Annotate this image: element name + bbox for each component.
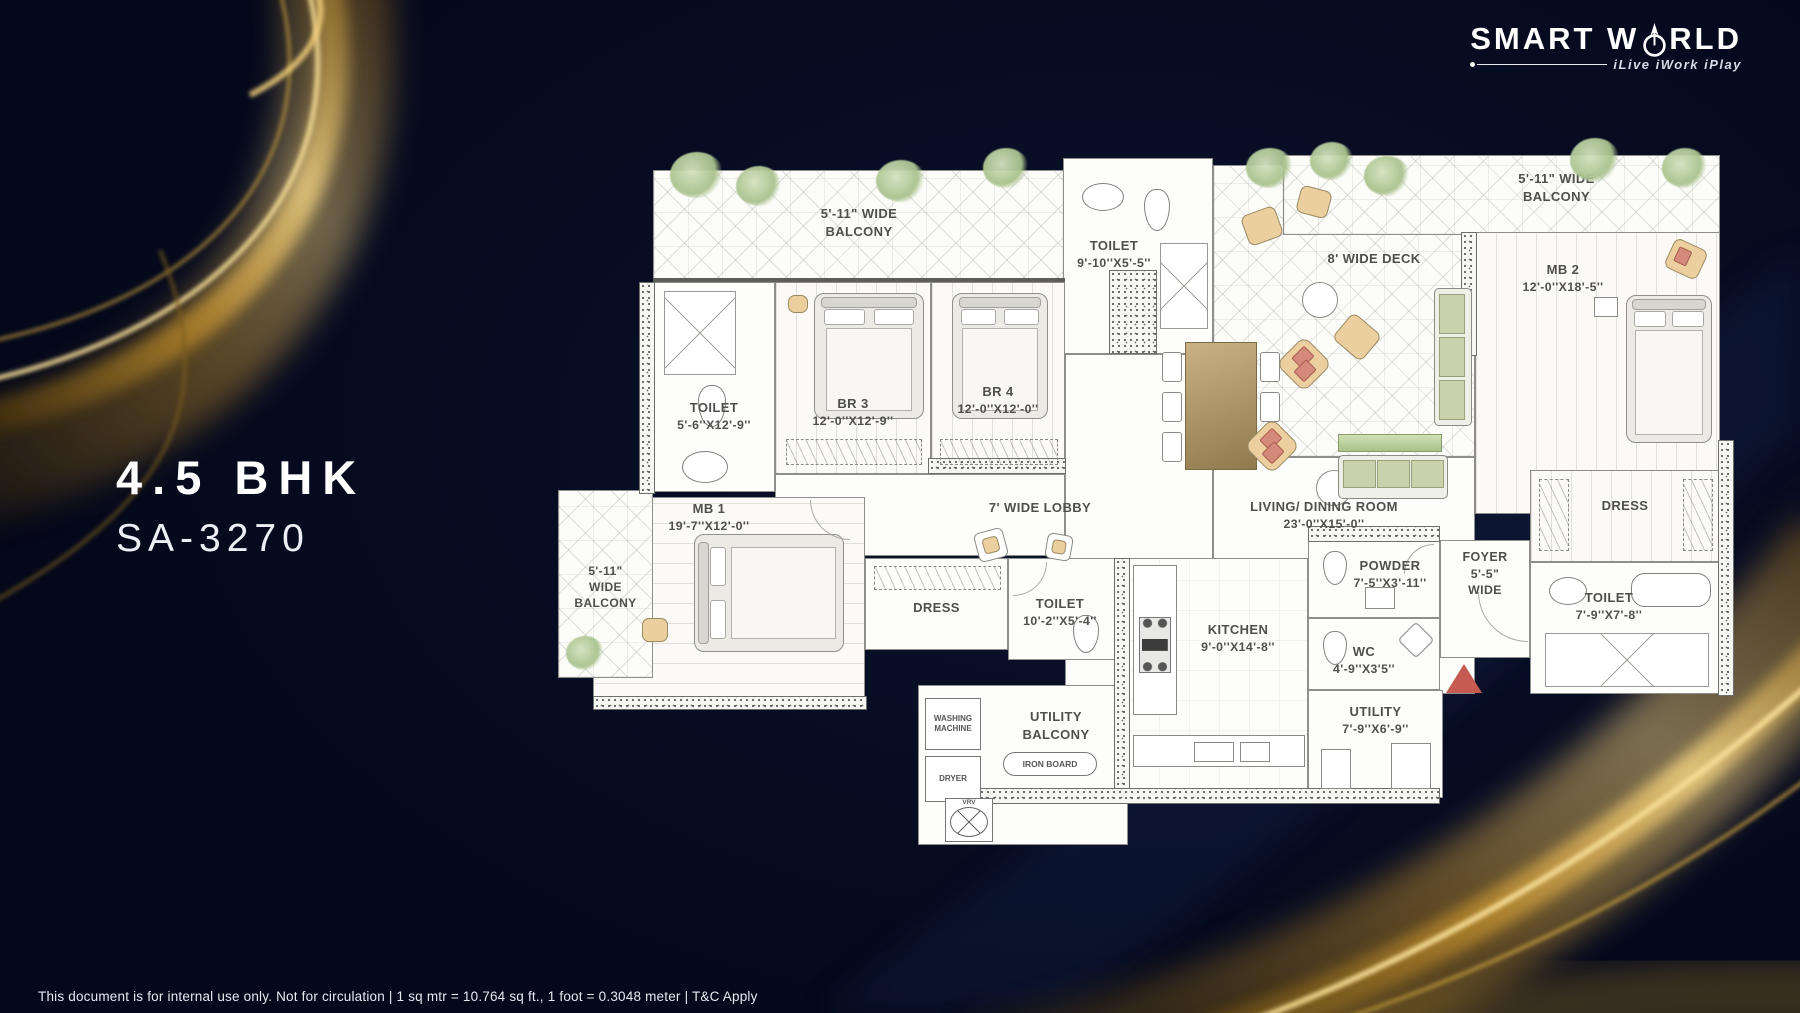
room-dims: 7'-9''X7'-8'' bbox=[1515, 607, 1703, 624]
room-dims: 4'-9''X3'5'' bbox=[1319, 661, 1409, 678]
dining-chair bbox=[1260, 352, 1280, 382]
room-name: BR 4 bbox=[932, 383, 1064, 401]
room-label: LIVING/ DINING ROOM 23'-0''X15'-0'' bbox=[1194, 498, 1454, 532]
kitchen-counter bbox=[1133, 735, 1305, 767]
room-dims: 23'-0''X15'-0'' bbox=[1194, 516, 1454, 533]
dryer: DRYER bbox=[925, 756, 981, 802]
deck-chair bbox=[1332, 312, 1383, 362]
tree bbox=[1246, 148, 1294, 188]
tree bbox=[670, 152, 724, 198]
feature-wall bbox=[1114, 558, 1130, 792]
dining-chair bbox=[1162, 392, 1182, 422]
room-label: MB 1 19'-7''X12'-0'' bbox=[624, 500, 794, 534]
room-name: FOYER bbox=[1441, 549, 1529, 566]
nightstand bbox=[1594, 297, 1618, 317]
room-name: 5'-11" bbox=[559, 563, 652, 579]
room-toilet-left: TOILET 5'-6''X12'-9'' bbox=[653, 282, 775, 492]
brand-logo: SMART W RLD iLive iWork iPlay bbox=[1470, 22, 1742, 72]
deck-table bbox=[1302, 282, 1338, 318]
room-dims: 19'-7''X12'-0'' bbox=[624, 518, 794, 535]
room-label: WC 4'-9''X3'5'' bbox=[1319, 643, 1409, 677]
sofa-cushion bbox=[1439, 380, 1465, 420]
room-kitchen: KITCHEN 9'-0''X14'-8'' bbox=[1128, 558, 1308, 792]
utility-appliance bbox=[1391, 743, 1431, 789]
room-name: MB 2 bbox=[1482, 261, 1644, 279]
bed bbox=[694, 534, 844, 652]
vrv-unit: VRV bbox=[945, 798, 993, 842]
room-name: LIVING/ DINING ROOM bbox=[1194, 498, 1454, 516]
room-utility: UTILITY 7'-9''X6'-9'' bbox=[1308, 690, 1443, 798]
wall-segment bbox=[653, 278, 1065, 282]
room-label: 7' WIDE LOBBY bbox=[896, 499, 1184, 517]
room-label: UTILITY BALCONY bbox=[969, 708, 1143, 743]
tree bbox=[983, 148, 1029, 188]
tree bbox=[1364, 156, 1410, 196]
pillow bbox=[1004, 309, 1040, 325]
room-label: 5'-11" WIDE BALCONY bbox=[1434, 170, 1679, 205]
entry-arrow-icon bbox=[1446, 664, 1482, 693]
sofa bbox=[1434, 288, 1472, 426]
wardrobe bbox=[786, 439, 922, 465]
floor-plan: 5'-11" WIDE BALCONY TOILET 9'-10''X5'-5'… bbox=[558, 140, 1738, 890]
footer-disclaimer: This document is for internal use only. … bbox=[38, 989, 758, 1004]
cushion bbox=[1673, 246, 1692, 266]
iron-board-label: IRON BOARD bbox=[1023, 759, 1078, 769]
room-label: 8' WIDE DECK bbox=[1244, 250, 1504, 268]
room-wc: WC 4'-9''X3'5'' bbox=[1308, 618, 1440, 690]
dining-chair bbox=[1162, 432, 1182, 462]
wardrobe bbox=[874, 566, 1001, 590]
room-dims: 9'-10''X5'-5'' bbox=[1050, 255, 1178, 272]
room-name: 7' WIDE LOBBY bbox=[896, 499, 1184, 517]
headboard bbox=[1632, 299, 1706, 310]
tree bbox=[566, 636, 604, 670]
room-dims: 12'-0''X12'-9'' bbox=[776, 413, 930, 430]
dryer-label: DRYER bbox=[926, 774, 980, 784]
slide: SMART W RLD iLive iWork iPlay 4.5 BHK SA… bbox=[0, 0, 1800, 1013]
room-name: TOILET bbox=[654, 399, 774, 417]
room-name2: BALCONY bbox=[1434, 188, 1679, 206]
room-dims: 7'-9''X6'-9'' bbox=[1309, 721, 1442, 738]
pillow bbox=[710, 600, 726, 639]
room-toilet-right: TOILET 7'-9''X7'-8'' bbox=[1530, 562, 1720, 694]
planter-box bbox=[1338, 434, 1442, 452]
room-name2: BALCONY bbox=[654, 223, 1064, 241]
logo-dot bbox=[1470, 62, 1475, 67]
room-dress-left: DRESS bbox=[865, 558, 1008, 650]
room-label: 5'-11" WIDE BALCONY bbox=[559, 563, 652, 612]
dining-chair bbox=[1260, 392, 1280, 422]
room-dims: 9'-0''X14'-8'' bbox=[1159, 639, 1317, 656]
feature-wall bbox=[639, 282, 655, 494]
logo-tagline: iLive iWork iPlay bbox=[1613, 57, 1742, 72]
kitchen-sink bbox=[1240, 742, 1270, 762]
room-name: DRESS bbox=[866, 599, 1007, 617]
room-dims: 12'-0''X18'-5'' bbox=[1482, 279, 1644, 296]
room-label: TOILET 9'-10''X5'-5'' bbox=[1050, 237, 1178, 271]
armchair bbox=[1663, 237, 1709, 281]
feature-wall bbox=[1109, 270, 1157, 354]
room-name: TOILET bbox=[1050, 237, 1178, 255]
room-utility-balcony: WASHING MACHINE DRYER IRON BOARD VRV UTI… bbox=[918, 685, 1128, 845]
deck-chair bbox=[1240, 205, 1285, 247]
wardrobe bbox=[1683, 479, 1713, 551]
nightstand bbox=[642, 618, 668, 642]
sink-fixture bbox=[682, 451, 728, 483]
room-label: KITCHEN 9'-0''X14'-8'' bbox=[1159, 621, 1317, 655]
room-label: UTILITY 7'-9''X6'-9'' bbox=[1309, 703, 1442, 737]
sofa-cushion bbox=[1439, 294, 1465, 334]
room-name3: BALCONY bbox=[559, 595, 652, 611]
room-name: TOILET bbox=[1515, 589, 1703, 607]
logo-underline: iLive iWork iPlay bbox=[1470, 57, 1742, 72]
headboard bbox=[821, 297, 916, 308]
unit-code: SA-3270 bbox=[116, 517, 366, 561]
unit-block: 4.5 BHK SA-3270 bbox=[116, 450, 366, 561]
room-name: BR 3 bbox=[776, 395, 930, 413]
room-name: POWDER bbox=[1331, 557, 1449, 575]
logo-text-left: SMART W bbox=[1470, 23, 1639, 54]
room-name: MB 1 bbox=[624, 500, 794, 518]
blanket bbox=[731, 547, 836, 640]
room-label: BR 4 12'-0''X12'-0'' bbox=[932, 383, 1064, 417]
room-name2: WIDE bbox=[559, 579, 652, 595]
nightstand bbox=[788, 295, 808, 313]
room-name: 5'-11" WIDE bbox=[654, 205, 1064, 223]
wash-basin bbox=[1044, 532, 1074, 562]
room-label: POWDER 7'-5''X3'-11'' bbox=[1331, 557, 1449, 591]
room-label: 5'-11" WIDE BALCONY bbox=[654, 205, 1064, 240]
room-dims: 5'-5" bbox=[1441, 566, 1529, 583]
room-label: DRESS bbox=[866, 599, 1007, 617]
headboard bbox=[698, 542, 709, 644]
room-name: UTILITY bbox=[969, 708, 1143, 726]
pillow bbox=[874, 309, 915, 325]
room-name: UTILITY bbox=[1309, 703, 1442, 721]
room-dims: 10'-2''X5'-4'' bbox=[1001, 613, 1119, 630]
pillow bbox=[961, 309, 997, 325]
headboard bbox=[959, 297, 1042, 308]
basin-bowl bbox=[981, 535, 1000, 554]
room-dress-right: DRESS bbox=[1530, 470, 1720, 562]
dining-table bbox=[1185, 342, 1257, 470]
iron-board: IRON BOARD bbox=[1003, 752, 1097, 776]
vrv-label: VRV bbox=[946, 799, 992, 807]
sofa-cushion bbox=[1343, 460, 1376, 488]
room-label: TOILET 7'-9''X7'-8'' bbox=[1515, 589, 1703, 623]
wardrobe bbox=[1539, 479, 1569, 551]
sofa-cushion bbox=[1377, 460, 1410, 488]
room-label: MB 2 12'-0''X18'-5'' bbox=[1482, 261, 1644, 295]
pillow bbox=[710, 547, 726, 586]
compass-globe-icon bbox=[1641, 22, 1668, 59]
room-name: 5'-11" WIDE bbox=[1434, 170, 1679, 188]
tree bbox=[1310, 142, 1354, 180]
logo-wordmark: SMART W RLD bbox=[1470, 22, 1742, 55]
bed bbox=[1626, 295, 1712, 443]
tree bbox=[1570, 138, 1620, 182]
sofa-cushion bbox=[1439, 337, 1465, 377]
pillow bbox=[1672, 311, 1704, 327]
room-br4: BR 4 12'-0''X12'-0'' bbox=[931, 282, 1065, 474]
room-label: BR 3 12'-0''X12'-9'' bbox=[776, 395, 930, 429]
logo-rule bbox=[1477, 64, 1607, 65]
room-label: TOILET 5'-6''X12'-9'' bbox=[654, 399, 774, 433]
room-name: 8' WIDE DECK bbox=[1244, 250, 1504, 268]
room-dims: 12'-0''X12'-0'' bbox=[932, 401, 1064, 418]
basin-bowl bbox=[1051, 539, 1067, 555]
sink-fixture bbox=[1082, 183, 1124, 211]
room-name: DRESS bbox=[1531, 497, 1719, 515]
wc-fixture bbox=[1144, 189, 1170, 231]
room-label: TOILET 10'-2''X5'-4'' bbox=[1001, 595, 1119, 629]
pillow bbox=[1634, 311, 1666, 327]
pillow bbox=[824, 309, 865, 325]
sofa bbox=[1338, 455, 1448, 499]
feature-wall bbox=[1718, 440, 1734, 696]
logo-text-right: RLD bbox=[1669, 23, 1742, 54]
shower bbox=[664, 291, 736, 375]
unit-type-title: 4.5 BHK bbox=[116, 450, 366, 505]
vrv-fan-icon bbox=[950, 807, 988, 837]
room-label: DRESS bbox=[1531, 497, 1719, 515]
room-name: TOILET bbox=[1001, 595, 1119, 613]
kitchen-sink bbox=[1194, 742, 1234, 762]
room-name: WC bbox=[1319, 643, 1409, 661]
tree bbox=[1662, 148, 1708, 188]
dining-chair bbox=[1162, 352, 1182, 382]
blanket bbox=[1635, 330, 1702, 435]
wardrobe bbox=[940, 439, 1058, 465]
room-dims: 7'-5''X3'-11'' bbox=[1331, 575, 1449, 592]
tree bbox=[736, 166, 782, 206]
room-br3: BR 3 12'-0''X12'-9'' bbox=[775, 282, 931, 474]
utility-appliance bbox=[1321, 749, 1351, 789]
room-name2: BALCONY bbox=[969, 726, 1143, 744]
feature-wall bbox=[593, 696, 867, 710]
shower bbox=[1545, 633, 1709, 687]
room-dims: 5'-6''X12'-9'' bbox=[654, 417, 774, 434]
feature-wall bbox=[978, 788, 1440, 804]
tree bbox=[876, 160, 926, 202]
sofa-cushion bbox=[1411, 460, 1444, 488]
room-name: KITCHEN bbox=[1159, 621, 1317, 639]
